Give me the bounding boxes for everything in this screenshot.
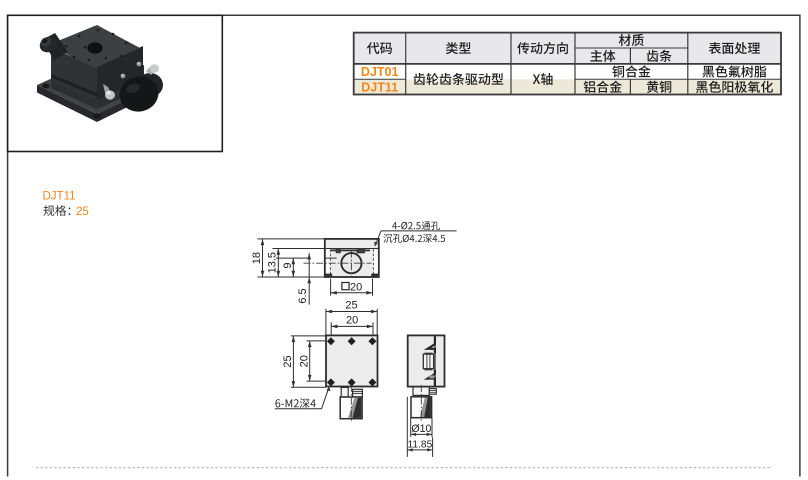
svg-text:20: 20: [299, 355, 311, 367]
svg-text:11.85: 11.85: [408, 439, 433, 450]
svg-text:Ø10: Ø10: [411, 423, 431, 435]
svg-text:20: 20: [346, 314, 358, 326]
svg-text:25: 25: [282, 355, 294, 367]
svg-text:25: 25: [76, 206, 89, 218]
svg-text:13.5: 13.5: [267, 252, 279, 273]
svg-text:18: 18: [251, 252, 263, 264]
svg-text:25: 25: [345, 299, 357, 311]
svg-text:DJT01: DJT01: [361, 65, 399, 79]
svg-text:6.5: 6.5: [297, 288, 309, 303]
svg-text:DJT11: DJT11: [43, 190, 76, 202]
svg-text:20: 20: [350, 282, 362, 294]
svg-text:DJT11: DJT11: [361, 80, 398, 94]
svg-text:9: 9: [282, 262, 294, 268]
